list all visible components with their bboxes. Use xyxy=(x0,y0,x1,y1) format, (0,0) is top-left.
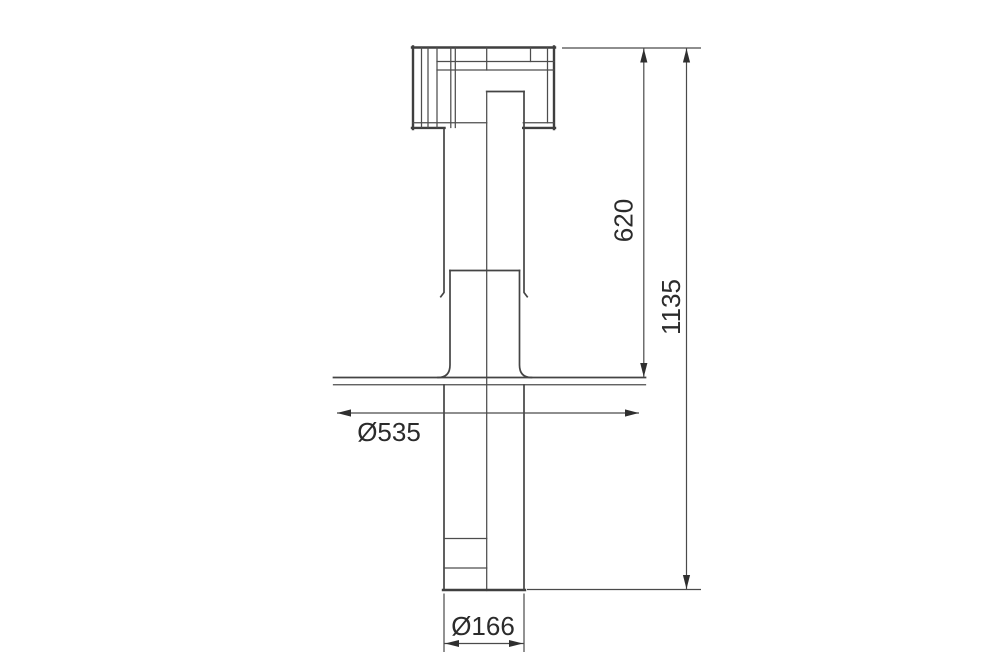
duct-left-wall xyxy=(441,129,444,297)
dimension-1135: 1135 xyxy=(656,48,690,590)
lower-spigot xyxy=(443,385,525,590)
arrowhead-up-icon xyxy=(640,49,647,63)
dim-label-166: Ø166 xyxy=(451,611,515,641)
arrowhead-right-icon xyxy=(625,409,639,416)
dimension-620: 620 xyxy=(609,48,648,378)
fan-head xyxy=(412,47,555,130)
arrowhead-left-icon xyxy=(337,409,351,416)
roof-fan-dimension-drawing: 620 1135 Ø535 Ø166 xyxy=(0,0,1000,658)
dim-label-1135: 1135 xyxy=(656,279,686,335)
roof-flange xyxy=(334,378,646,385)
arrowhead-left-icon xyxy=(445,640,459,647)
extension-lines xyxy=(444,48,701,652)
dim-label-535: Ø535 xyxy=(357,417,421,447)
dimension-drawing-canvas: 620 1135 Ø535 Ø166 xyxy=(0,0,1000,658)
dim-label-620: 620 xyxy=(609,199,639,242)
arrowhead-right-icon xyxy=(509,640,523,647)
arrowhead-down-icon xyxy=(683,575,690,589)
arrowhead-down-icon xyxy=(640,363,647,377)
dimension-166: Ø166 xyxy=(444,611,524,647)
inner-duct xyxy=(438,271,532,378)
dimension-535: Ø535 xyxy=(337,409,639,447)
arrowhead-up-icon xyxy=(683,49,690,63)
inner-duct-right-wall xyxy=(520,271,532,378)
